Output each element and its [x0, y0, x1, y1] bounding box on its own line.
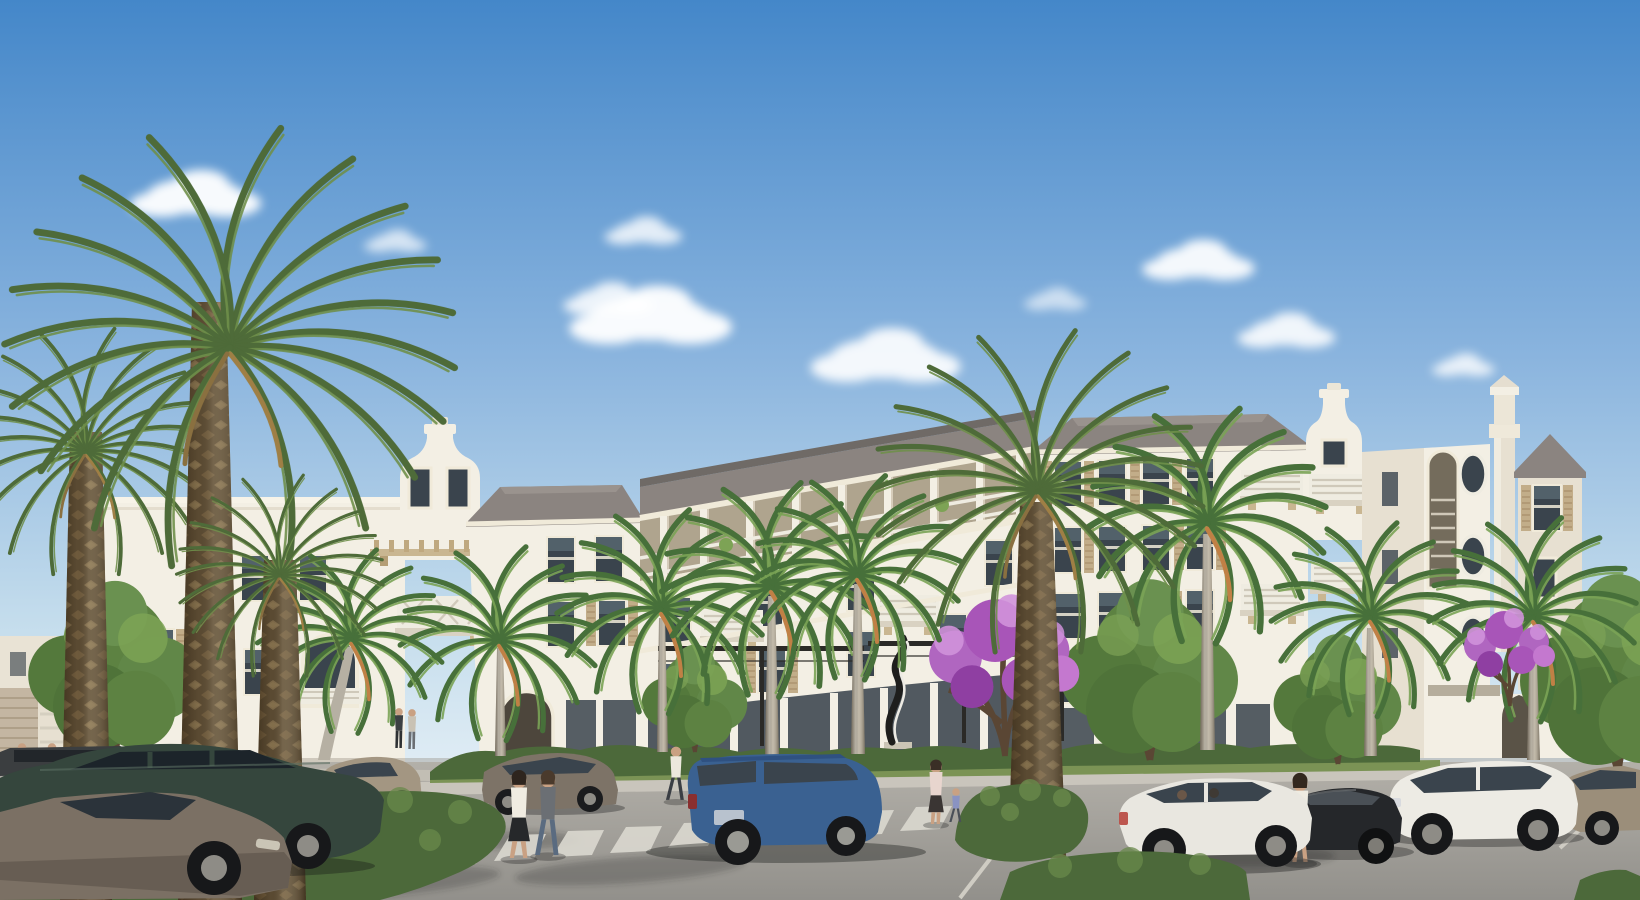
balcony-plant	[719, 538, 733, 552]
louvered-arch-niche	[1428, 451, 1458, 588]
rendering-canvas	[0, 0, 1640, 900]
vehicle-white-crossover	[1384, 761, 1584, 855]
scene-svg	[0, 0, 1640, 900]
